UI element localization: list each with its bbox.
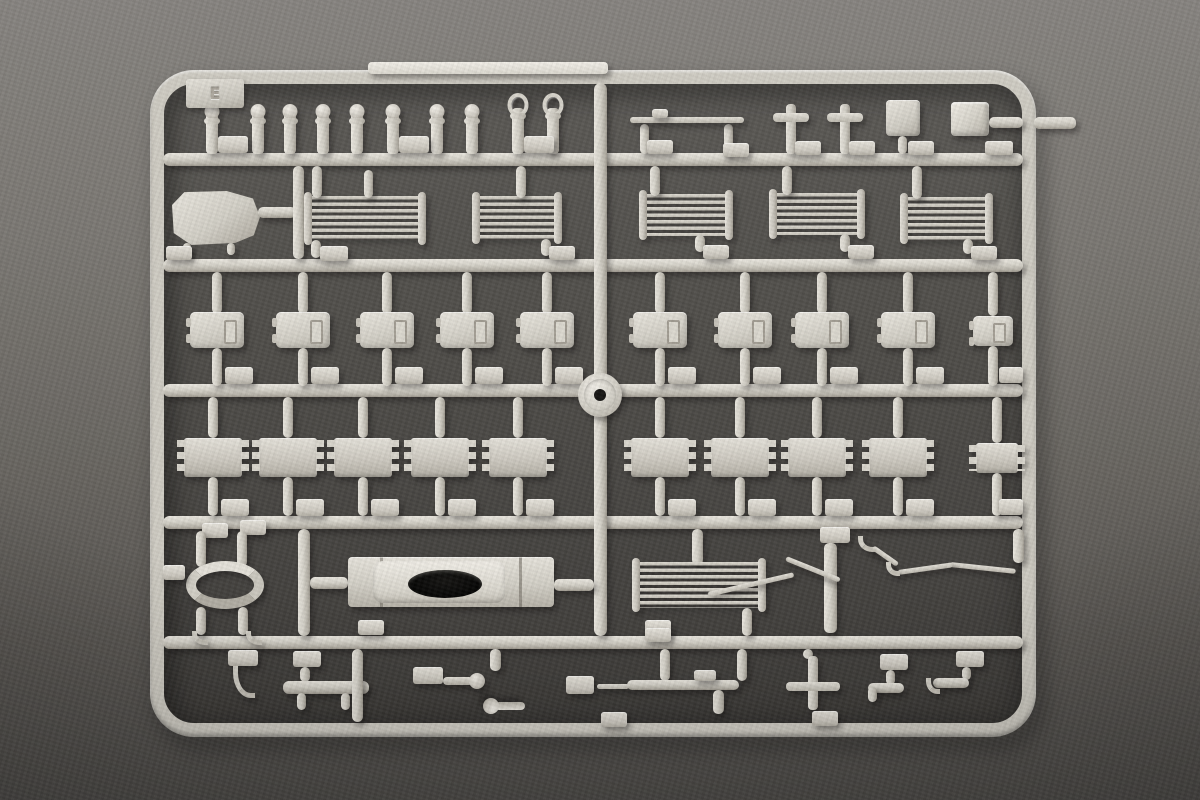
gate-tab xyxy=(320,246,348,261)
gate-tab xyxy=(820,527,850,543)
hatch-stub xyxy=(462,272,472,314)
pad-stub xyxy=(435,477,445,516)
gate-tab xyxy=(645,628,671,642)
runner-rail-2 xyxy=(163,259,1023,272)
rod-antenna xyxy=(630,117,744,123)
hatch xyxy=(440,312,494,348)
sprue-letter: E xyxy=(210,84,221,103)
bar-foot xyxy=(297,693,306,710)
square-plate xyxy=(886,100,920,136)
grille-stub xyxy=(912,166,922,199)
pad-stub xyxy=(283,397,293,438)
hatch-stub xyxy=(298,272,308,314)
pad-stub xyxy=(208,397,218,438)
ribbed-pad xyxy=(711,438,769,477)
gate-tab xyxy=(703,245,729,259)
pad-stub xyxy=(735,477,745,516)
periscope-knob xyxy=(387,113,399,154)
lifting-eye xyxy=(512,108,524,154)
grille-stub xyxy=(650,166,660,196)
gate-tab xyxy=(549,246,575,260)
gate-tab xyxy=(848,245,874,259)
periscope-knob xyxy=(252,113,264,154)
side-knob xyxy=(483,698,525,714)
hatch-stub xyxy=(988,272,998,316)
hatch-stub xyxy=(817,348,827,386)
hatch xyxy=(633,312,687,348)
hatch-stub xyxy=(382,348,392,386)
gate-tab xyxy=(163,565,185,580)
bar-stub xyxy=(300,667,310,682)
runner-e1 xyxy=(298,529,310,636)
hatch-small xyxy=(973,316,1013,346)
louvered-grille xyxy=(475,196,559,240)
pad-stub xyxy=(992,397,1002,443)
louvered-grille xyxy=(903,197,990,240)
runner-rail-1 xyxy=(163,153,1023,166)
periscope-knob xyxy=(317,113,329,154)
gate-tab xyxy=(812,711,838,726)
gate-tab xyxy=(524,136,554,153)
gate-tab xyxy=(908,141,934,155)
gate-tab xyxy=(849,141,875,155)
pad-stub xyxy=(655,477,665,516)
mg-grip xyxy=(713,690,724,714)
rod-fitting xyxy=(652,109,668,118)
gate-tab xyxy=(723,143,749,157)
hatch-stub xyxy=(542,272,552,314)
gate-tab xyxy=(293,651,321,667)
hatch xyxy=(520,312,574,348)
pad-stub xyxy=(513,397,523,438)
pad-stub xyxy=(435,397,445,438)
side-knob xyxy=(443,673,485,689)
louvered-grille xyxy=(642,194,730,236)
mg-body xyxy=(627,680,739,690)
hatch-stub xyxy=(903,272,913,314)
center-runner xyxy=(594,83,607,636)
hatch-stub xyxy=(740,348,750,386)
hatch-stub xyxy=(462,348,472,386)
grille-stub xyxy=(312,166,322,198)
ribbed-pad xyxy=(489,438,547,477)
wire-stub xyxy=(1013,529,1024,563)
gate-tab xyxy=(358,620,384,635)
hatch-stub xyxy=(212,348,222,386)
hatch-stub xyxy=(542,348,552,386)
gate-tab xyxy=(971,246,997,260)
valve-fitting xyxy=(786,656,840,710)
hatch-stub xyxy=(988,346,998,386)
gate-tab xyxy=(555,367,583,384)
mg-magazine xyxy=(694,670,716,681)
hatch-stub xyxy=(655,272,665,314)
housing-stub xyxy=(310,577,348,589)
molded-strip xyxy=(368,62,608,74)
photo-canvas: E xyxy=(0,0,1200,800)
hatch-stub xyxy=(903,348,913,386)
housing-stub xyxy=(554,579,594,591)
pad-stub xyxy=(812,397,822,438)
gate-tab xyxy=(825,499,853,516)
gate-tab xyxy=(601,712,627,727)
hatch xyxy=(881,312,935,348)
gate-tab xyxy=(225,367,253,384)
hatch xyxy=(718,312,772,348)
runner-rail-4 xyxy=(163,516,1023,529)
periscope-knob xyxy=(466,113,478,154)
stowage-box xyxy=(951,102,989,136)
gate-tab xyxy=(296,499,324,516)
periscope-knob xyxy=(284,113,296,154)
fan-housing xyxy=(348,557,554,607)
box-stub xyxy=(989,117,1023,128)
gate-tab xyxy=(668,367,696,384)
pad-stub xyxy=(283,477,293,516)
bracket-leg xyxy=(868,687,877,702)
gate-tab xyxy=(795,141,821,155)
periscope-knob xyxy=(206,113,218,154)
ring-stub xyxy=(196,531,206,567)
pad-stub xyxy=(358,477,368,516)
gate-tab xyxy=(475,367,503,384)
pipe-part xyxy=(824,543,837,633)
pad-stub xyxy=(358,397,368,438)
runner-rail-5 xyxy=(163,636,1023,649)
vent-foot xyxy=(227,243,235,255)
hatch-stub xyxy=(382,272,392,314)
pad-stub xyxy=(735,397,745,438)
gate-tab xyxy=(668,499,696,516)
vent-stub xyxy=(258,207,296,218)
hatch xyxy=(190,312,244,348)
gate-tab xyxy=(830,367,858,384)
pad-stub xyxy=(812,477,822,516)
injection-disc xyxy=(578,373,622,417)
gate-tab xyxy=(395,367,423,384)
ventilator-box xyxy=(172,191,260,245)
gate-tab xyxy=(748,499,776,516)
ribbed-pad-small xyxy=(976,443,1018,473)
gate-tab xyxy=(371,499,399,516)
gate-tab xyxy=(448,499,476,516)
gate-tab xyxy=(753,367,781,384)
gate-tab xyxy=(956,651,984,667)
ribbed-pad xyxy=(184,438,242,477)
oval-tow-ring xyxy=(186,561,264,609)
ribbed-pad xyxy=(411,438,469,477)
runner-stub xyxy=(490,649,501,671)
grille-stub xyxy=(782,166,792,195)
grille-stub xyxy=(742,608,752,636)
gate-tab xyxy=(228,650,258,666)
gate-tab xyxy=(906,499,934,516)
gate-tab xyxy=(916,367,944,384)
louvered-grille xyxy=(772,193,862,235)
gate-tab xyxy=(999,499,1023,515)
gate-tab xyxy=(566,676,594,694)
gate-tab xyxy=(526,499,554,516)
ribbed-pad xyxy=(334,438,392,477)
gate-tab xyxy=(311,367,339,384)
runner-b1 xyxy=(293,166,304,259)
gate-tab xyxy=(166,246,192,260)
gate-tab xyxy=(985,141,1013,155)
pad-stub xyxy=(655,397,665,438)
grille-post xyxy=(364,170,373,198)
hatch xyxy=(360,312,414,348)
hatch-stub xyxy=(212,272,222,314)
pad-stub xyxy=(208,477,218,516)
pad-stub xyxy=(893,397,903,438)
ribbed-pad xyxy=(869,438,927,477)
edge-stub xyxy=(1034,117,1076,129)
gate-tab xyxy=(218,136,248,153)
plate-stem xyxy=(898,136,907,154)
hatch-stub xyxy=(817,272,827,314)
hatch-stub xyxy=(298,348,308,386)
gate-tab xyxy=(221,499,249,516)
bar-foot xyxy=(341,693,350,710)
periscope-knob xyxy=(351,113,363,154)
hatch xyxy=(276,312,330,348)
hatch-stub xyxy=(740,272,750,314)
ribbed-pad xyxy=(631,438,689,477)
grille-stub xyxy=(692,529,703,565)
mg-barrel xyxy=(597,684,629,689)
gate-tab xyxy=(413,667,443,684)
ribbed-pad xyxy=(259,438,317,477)
gate-tab xyxy=(647,140,673,154)
ribbed-pad xyxy=(788,438,846,477)
runner-f1 xyxy=(352,649,363,722)
louvered-grille xyxy=(307,196,423,241)
hatch-stub xyxy=(655,348,665,386)
hatch xyxy=(795,312,849,348)
mg-stub xyxy=(660,649,670,681)
periscope-knob xyxy=(431,113,443,154)
grille-stub xyxy=(516,166,526,198)
mg-stub xyxy=(737,649,747,681)
pad-stub xyxy=(513,477,523,516)
gate-tab xyxy=(399,136,429,153)
sprue-scene: E xyxy=(0,0,1200,800)
sprue-letter-tab: E xyxy=(186,79,244,108)
gate-tab xyxy=(999,367,1023,383)
gate-tab xyxy=(880,654,908,670)
pad-stub xyxy=(893,477,903,516)
